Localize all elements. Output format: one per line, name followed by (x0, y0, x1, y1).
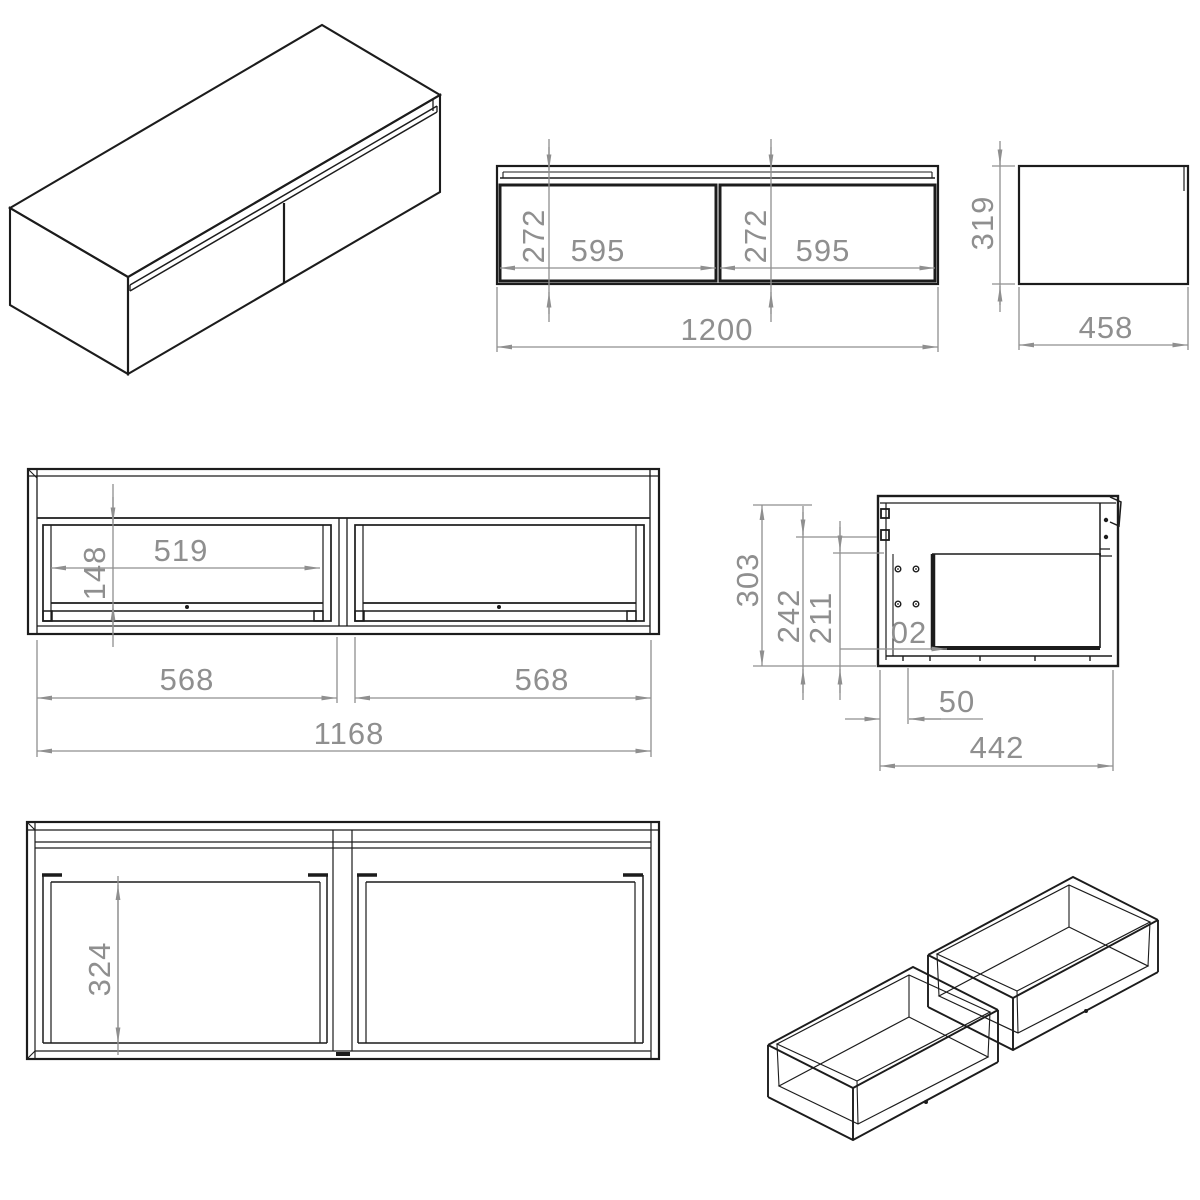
right-drawer-opening (355, 525, 644, 621)
dim-overall-height: 319 (965, 196, 1000, 251)
dim-drawer-height-right: 272 (738, 209, 773, 264)
technical-drawing-canvas: 272 272 595 595 1200 319 458 (0, 0, 1200, 1200)
dim-opening-width: 519 (154, 533, 209, 568)
dim-opening-height: 148 (77, 546, 112, 601)
hanger-tab (1110, 497, 1121, 526)
drawer-box-front (768, 967, 998, 1140)
dim-overall-width: 1200 (681, 312, 754, 347)
right-drawer-cavity (357, 875, 643, 1043)
side-section-view: 303 242 211 02 50 442 (730, 496, 1121, 771)
dim-inner-width: 1168 (314, 716, 385, 751)
dim-bay-width-right: 568 (515, 662, 570, 697)
dim-bay-width-left: 568 (160, 662, 215, 697)
side-view: 319 458 (965, 141, 1188, 350)
front-view: 272 272 595 595 1200 (497, 139, 938, 352)
dim-depth-442: 442 (970, 730, 1025, 765)
plan-view: 324 (27, 822, 659, 1059)
technical-drawing-page: 272 272 595 595 1200 319 458 (0, 0, 1200, 1200)
mounting-holes (895, 566, 919, 607)
dim-offset-50: 50 (939, 684, 975, 719)
dim-overall-depth: 458 (1079, 310, 1134, 345)
dim-drawer-width-left: 595 (571, 233, 626, 268)
drawer-section (931, 554, 1101, 649)
dim-height-303: 303 (730, 553, 765, 608)
dim-drawer-width-right: 595 (796, 233, 851, 268)
iso-cabinet-view (10, 25, 440, 374)
dim-drawer-height-left: 272 (516, 209, 551, 264)
carcass-front-view: 519 148 568 568 1168 (28, 469, 659, 757)
dim-height-211: 211 (803, 592, 838, 644)
dim-partial-label: 02 (891, 615, 927, 650)
dim-drawer-inner-depth: 324 (82, 942, 117, 997)
iso-drawer-boxes (768, 877, 1158, 1140)
dim-height-242: 242 (771, 589, 806, 644)
drawer-box-back (928, 877, 1158, 1050)
